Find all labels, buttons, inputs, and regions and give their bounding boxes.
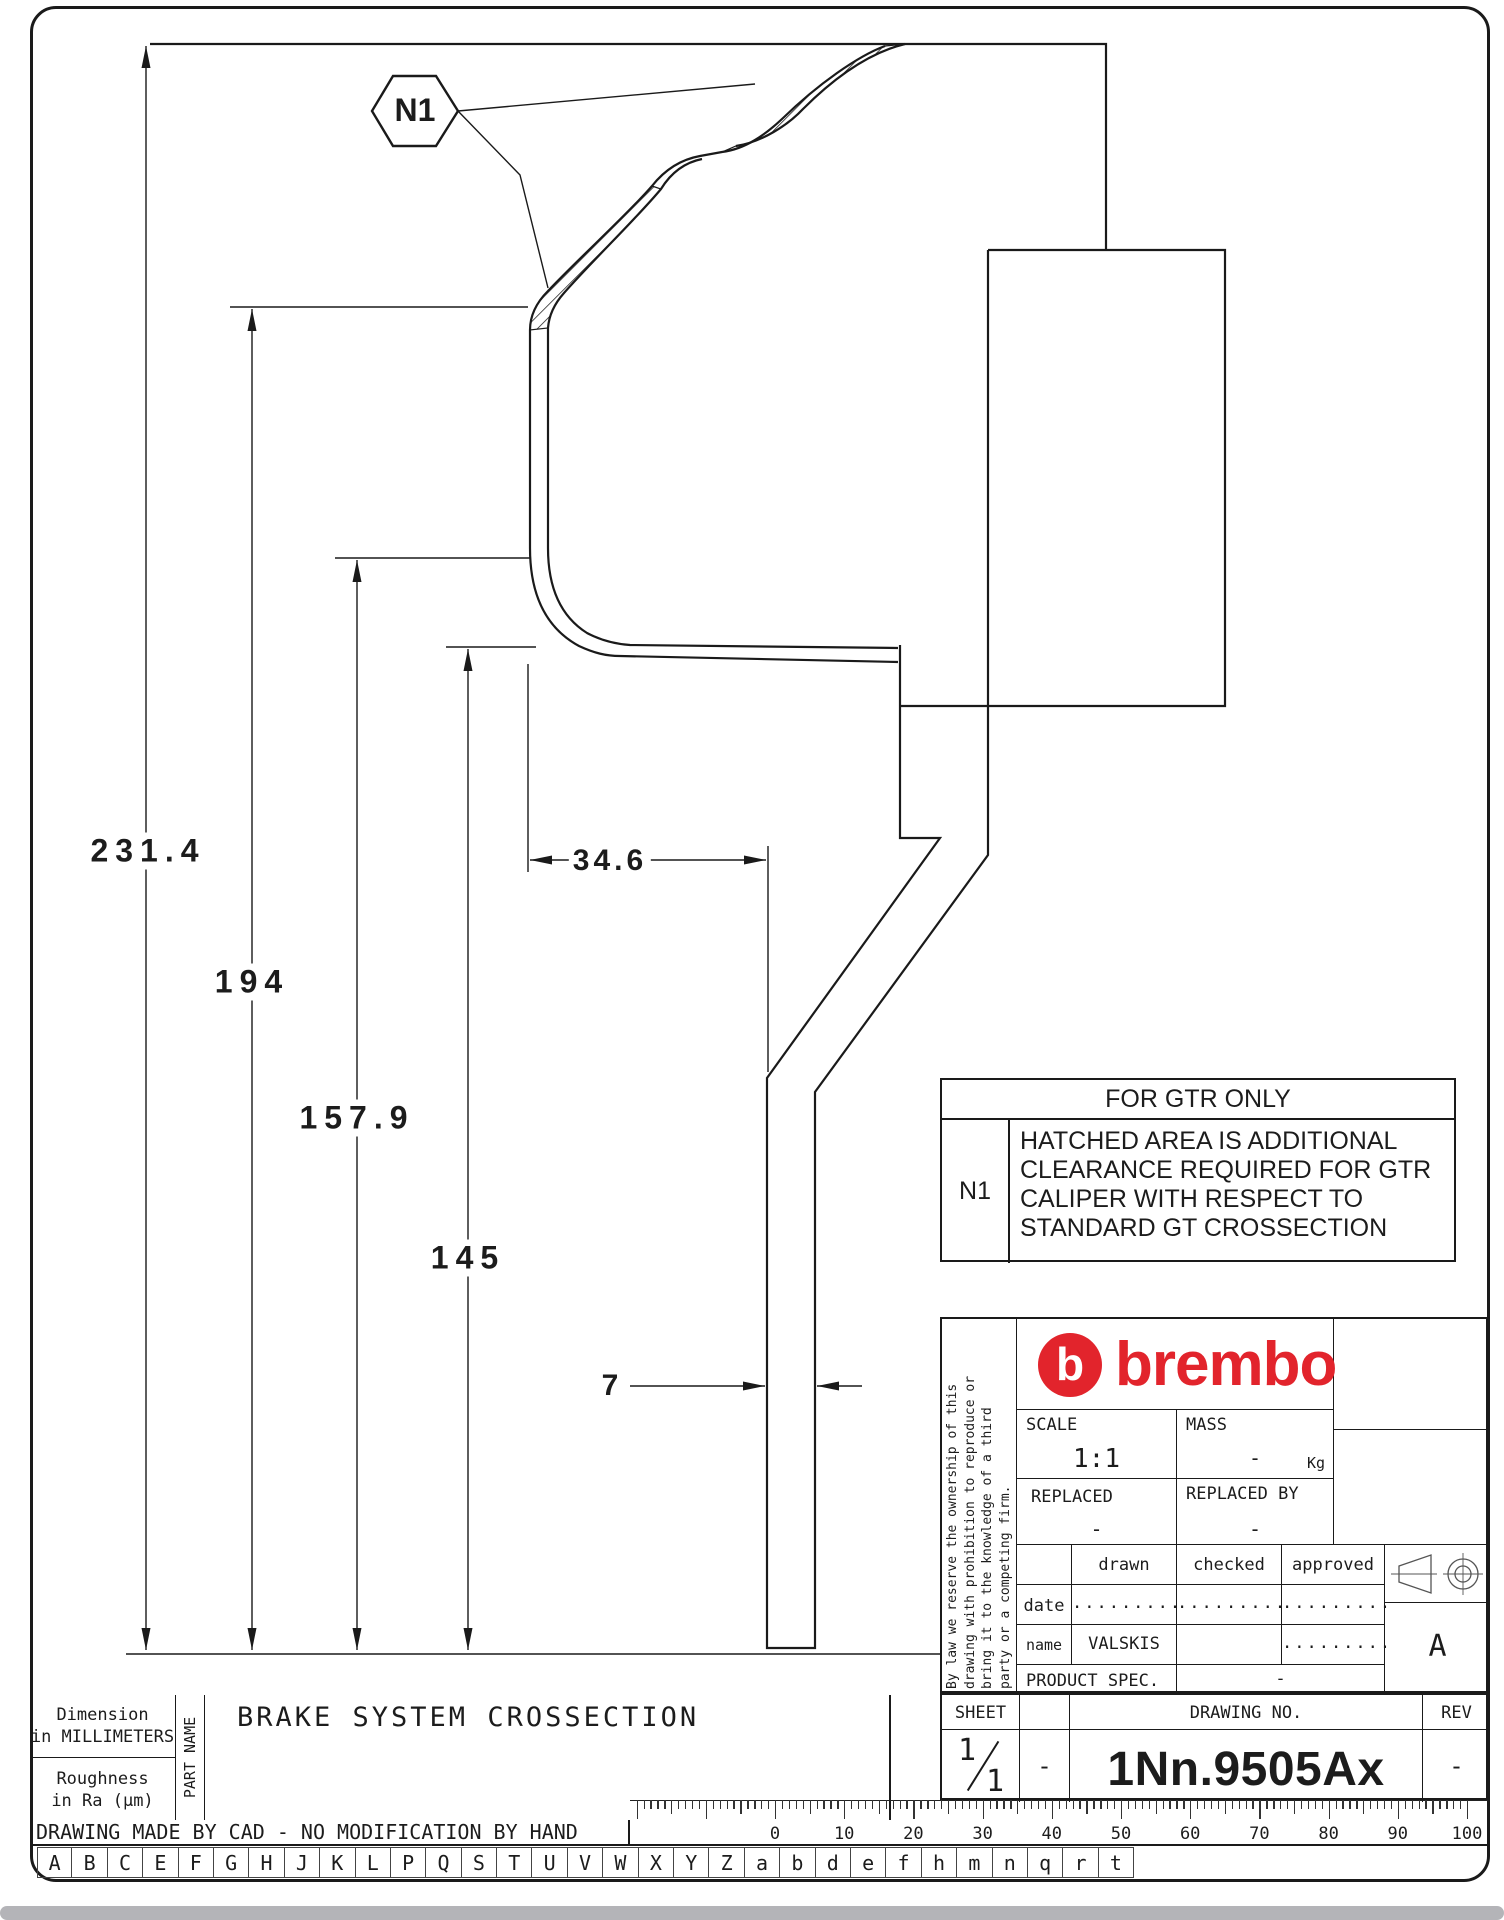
- ruler-tick: [1010, 1800, 1011, 1809]
- letter-cell: d: [816, 1847, 851, 1878]
- ruler-tick: [1412, 1800, 1413, 1809]
- ruler-tick: [1086, 1800, 1087, 1814]
- letter-cell: J: [285, 1847, 320, 1878]
- ruler-tick: [906, 1800, 907, 1809]
- name-approved-cell: .........: [1282, 1625, 1385, 1665]
- ruler-tick: [1342, 1800, 1343, 1809]
- ruler-tick: [1079, 1800, 1080, 1809]
- ruler-tick: [1322, 1800, 1323, 1809]
- letter-cell: A: [37, 1847, 72, 1878]
- letter-cell: F: [179, 1847, 214, 1878]
- ruler-tick: [1419, 1800, 1420, 1809]
- rev-value: -: [1423, 1752, 1490, 1780]
- ruler-tick: [1246, 1800, 1247, 1809]
- ruler-tick: [830, 1800, 831, 1809]
- ruler-label: 100: [1445, 1824, 1489, 1844]
- legal-line: bring it to the knowledge of a third: [979, 1319, 997, 1689]
- dimension-note-line: Dimension: [30, 1704, 175, 1726]
- ruler-tick: [1121, 1800, 1122, 1819]
- ruler-tick: [1232, 1800, 1233, 1809]
- ruler-tick: [1183, 1800, 1184, 1809]
- letter-cell: m: [957, 1847, 992, 1878]
- ruler-tick: [1169, 1800, 1170, 1809]
- checked-header: checked: [1177, 1545, 1282, 1585]
- ruler-label: 80: [1307, 1824, 1351, 1844]
- letter-cell: B: [72, 1847, 107, 1878]
- cad-drawing-page: N1 231.4 194 157.9 145 34.6 7 FOR GTR ON…: [0, 0, 1504, 1920]
- ruler-tick: [1252, 1800, 1253, 1809]
- svg-text:b: b: [1056, 1338, 1084, 1390]
- ruler-tick: [941, 1800, 942, 1809]
- letter-cell: T: [497, 1847, 532, 1878]
- ruler-tick: [664, 1800, 665, 1809]
- ruler-tick: [1329, 1800, 1330, 1819]
- ruler-tick: [775, 1800, 776, 1819]
- ruler-label: 60: [1168, 1824, 1212, 1844]
- letter-cell: P: [391, 1847, 426, 1878]
- revision-letter: A: [1385, 1629, 1490, 1664]
- callout-leader-lines: [458, 84, 755, 288]
- ruler-label: 40: [1030, 1824, 1074, 1844]
- ruler-label: 10: [822, 1824, 866, 1844]
- legal-notice: By law we reserve the ownership of this …: [942, 1319, 1017, 1695]
- ruler-label: 70: [1237, 1824, 1281, 1844]
- ruler-tick: [1425, 1800, 1426, 1809]
- product-spec-label: PRODUCT SPEC.: [1026, 1671, 1159, 1691]
- ruler-tick: [713, 1800, 714, 1809]
- ruler-tick: [1446, 1800, 1447, 1809]
- ruler-tick: [955, 1800, 956, 1809]
- sheet-label: SHEET: [942, 1703, 1019, 1723]
- part-name: BRAKE SYSTEM CROSSECTION: [237, 1707, 699, 1729]
- date-checked-value: .........: [1177, 1593, 1281, 1613]
- sheet-dash-cell: -: [1020, 1730, 1070, 1802]
- ruler-tick: [699, 1800, 700, 1809]
- ruler-tick: [1225, 1800, 1226, 1814]
- date-label: date: [1017, 1596, 1071, 1616]
- ruler-tick: [1128, 1800, 1129, 1809]
- ruler-tick: [1356, 1800, 1357, 1809]
- scale-label: SCALE: [1026, 1415, 1077, 1435]
- roughness-note-line: Roughness: [30, 1768, 175, 1790]
- ruler-tick: [1218, 1800, 1219, 1809]
- product-spec-value: -: [1177, 1669, 1384, 1689]
- ruler-tick: [1308, 1800, 1309, 1809]
- first-angle-projection-icon: [1385, 1545, 1490, 1603]
- ruler-tick: [851, 1800, 852, 1809]
- rev-header-cell: REV: [1423, 1695, 1490, 1730]
- ruler-tick: [1398, 1800, 1399, 1819]
- part-name-label-strip: PART NAME: [176, 1695, 205, 1820]
- drawn-header-label: drawn: [1072, 1555, 1176, 1575]
- ruler-tick: [823, 1800, 824, 1809]
- ruler-tick: [678, 1800, 679, 1809]
- ruler-tick: [934, 1800, 935, 1809]
- letter-cell: E: [143, 1847, 178, 1878]
- replaced-label: REPLACED: [1031, 1487, 1113, 1507]
- ruler-tick: [865, 1800, 866, 1809]
- ruler-tick: [1197, 1800, 1198, 1809]
- ruler-tick: [976, 1800, 977, 1809]
- roughness-note-line: in Ra (μm): [30, 1790, 175, 1812]
- ruler-tick: [1349, 1800, 1350, 1809]
- sheet-sub-cell: [1020, 1695, 1070, 1730]
- ruler-tick: [1315, 1800, 1316, 1809]
- name-checked-cell: [1177, 1625, 1282, 1665]
- ruler-tick: [1377, 1800, 1378, 1809]
- sheet-numerator: 1: [958, 1733, 976, 1768]
- ruler-tick: [1114, 1800, 1115, 1809]
- dim-thickness-label: 7: [598, 1369, 627, 1403]
- ruler-tick: [733, 1800, 734, 1809]
- letter-cell: f: [886, 1847, 921, 1878]
- rev-label: REV: [1423, 1703, 1490, 1723]
- brand-logo-cell: b brembo: [1017, 1319, 1334, 1410]
- ruler-tick: [754, 1800, 755, 1809]
- dim-157-label: 157.9: [295, 1100, 418, 1137]
- ruler-tick: [671, 1800, 672, 1814]
- ruler-tick: [1038, 1800, 1039, 1809]
- drawing-no-label: DRAWING NO.: [1070, 1703, 1422, 1723]
- ruler-tick: [747, 1800, 748, 1809]
- ruler-label: 50: [1099, 1824, 1143, 1844]
- ruler-tick: [1176, 1800, 1177, 1809]
- replaced-by-label: REPLACED BY: [1186, 1484, 1299, 1504]
- ruler-tick: [893, 1800, 894, 1809]
- letter-cell: H: [249, 1847, 284, 1878]
- drawn-header: drawn: [1072, 1545, 1177, 1585]
- ruler-tick: [1280, 1800, 1281, 1809]
- mass-label: MASS: [1186, 1415, 1227, 1435]
- ruler-tick: [1301, 1800, 1302, 1809]
- scale-cell: SCALE 1:1: [1017, 1410, 1177, 1479]
- legal-line: By law we reserve the ownership of this: [944, 1319, 962, 1689]
- ruler-tick: [872, 1800, 873, 1809]
- sheet-bar: SHEET DRAWING NO. REV 1 1 - 1Nn.9505Ax -: [940, 1693, 1488, 1800]
- letter-cell: b: [780, 1847, 815, 1878]
- product-spec-value-cell: -: [1177, 1665, 1385, 1695]
- letter-cell: e: [851, 1847, 886, 1878]
- ruler-tick: [920, 1800, 921, 1809]
- cad-note: DRAWING MADE BY CAD - NO MODIFICATION BY…: [36, 1820, 578, 1844]
- ruler-tick: [1439, 1800, 1440, 1809]
- ruler-tick: [1142, 1800, 1143, 1809]
- ruler-tick: [1204, 1800, 1205, 1809]
- letter-cell: q: [1028, 1847, 1063, 1878]
- mass-unit: Kg: [1307, 1454, 1325, 1472]
- product-spec-cell: PRODUCT SPEC.: [1017, 1665, 1177, 1695]
- ruler-tick: [768, 1800, 769, 1809]
- ruler-tick: [948, 1800, 949, 1814]
- ruler-tick: [1370, 1800, 1371, 1809]
- ruler-tick: [692, 1800, 693, 1809]
- name-drawn-cell: VALSKIS: [1072, 1625, 1177, 1665]
- ruler-tick: [817, 1800, 818, 1809]
- letter-cell: K: [320, 1847, 355, 1878]
- letter-cell: h: [922, 1847, 957, 1878]
- ruler-tick: [1135, 1800, 1136, 1809]
- ruler-label: 0: [753, 1824, 797, 1844]
- ruler-tick: [1384, 1800, 1385, 1809]
- letter-cell: V: [568, 1847, 603, 1878]
- sheet-denominator: 1: [986, 1764, 1004, 1799]
- date-approved-value: .........: [1282, 1593, 1384, 1613]
- ruler-tick: [810, 1800, 811, 1814]
- ruler-tick: [927, 1800, 928, 1809]
- brand-wordmark: brembo: [1115, 1334, 1336, 1396]
- drawing-number: 1Nn.9505Ax: [1070, 1742, 1422, 1797]
- roughness-note: Roughness in Ra (μm): [30, 1758, 176, 1820]
- letter-cell: Q: [426, 1847, 461, 1878]
- scale-value: 1:1: [1017, 1444, 1176, 1474]
- drawn-by-name: VALSKIS: [1072, 1634, 1176, 1654]
- ruler-tick: [990, 1800, 991, 1809]
- dim-width-label: 34.6: [569, 844, 651, 878]
- ruler-label: 30: [961, 1824, 1005, 1844]
- letter-cell: r: [1063, 1847, 1098, 1878]
- ruler-tick: [1336, 1800, 1337, 1809]
- window-bottom-bar: [0, 1906, 1504, 1920]
- letter-cell: Z: [709, 1847, 744, 1878]
- ruler-tick: [1031, 1800, 1032, 1809]
- date-checked-cell: .........: [1177, 1585, 1282, 1625]
- dim-194-label: 194: [211, 964, 293, 1001]
- revision-cell: A: [1385, 1603, 1490, 1695]
- dimension-note: Dimension in MILLIMETERS: [30, 1695, 176, 1758]
- ruler-tick: [1266, 1800, 1267, 1809]
- ruler-tick: [983, 1800, 984, 1819]
- ruler-tick: [1239, 1800, 1240, 1809]
- ruler-tick: [900, 1800, 901, 1809]
- part-name-label: PART NAME: [176, 1695, 205, 1820]
- note-ref-cell: N1: [942, 1120, 1010, 1263]
- ruler-label: 20: [891, 1824, 935, 1844]
- ruler-tick: [1003, 1800, 1004, 1809]
- letter-cell: G: [214, 1847, 249, 1878]
- letter-cell: Y: [674, 1847, 709, 1878]
- title-block-empty-cell: [1334, 1430, 1490, 1545]
- ruler-tick: [706, 1800, 707, 1819]
- letter-cell: t: [1099, 1847, 1134, 1878]
- ruler-tick: [782, 1800, 783, 1809]
- ruler-tick: [886, 1800, 887, 1809]
- ruler-tick: [740, 1800, 741, 1814]
- replaced-by-cell: REPLACED BY -: [1177, 1479, 1334, 1545]
- replaced-by-value: -: [1177, 1517, 1333, 1541]
- ruler-tick: [1432, 1800, 1433, 1814]
- ruler-tick: [1017, 1800, 1018, 1814]
- ruler-tick: [644, 1800, 645, 1809]
- ruler-tick: [1363, 1800, 1364, 1814]
- legal-line: drawing with prohibition to reproduce or: [962, 1319, 980, 1689]
- ruler-tick: [1190, 1800, 1191, 1819]
- note-line: CALIPER WITH RESPECT TO: [1020, 1185, 1450, 1214]
- ruler-tick: [844, 1800, 845, 1819]
- sheet-header-cell: SHEET: [942, 1695, 1020, 1730]
- ruler-tick: [1294, 1800, 1295, 1814]
- ruler-tick: [1107, 1800, 1108, 1809]
- checked-header-label: checked: [1177, 1555, 1281, 1575]
- ruler-tick: [1391, 1800, 1392, 1809]
- date-row-label-cell: date: [1017, 1585, 1072, 1625]
- ruler-tick: [803, 1800, 804, 1809]
- ruler-tick: [1149, 1800, 1150, 1809]
- ruler-tick: [637, 1800, 638, 1819]
- ruler-tick: [761, 1800, 762, 1809]
- drawing-no-header-cell: DRAWING NO.: [1070, 1695, 1423, 1730]
- ruler-tick: [1059, 1800, 1060, 1809]
- ruler-tick: [1066, 1800, 1067, 1809]
- note-line: HATCHED AREA IS ADDITIONAL: [1020, 1127, 1450, 1156]
- ruler-tick: [1045, 1800, 1046, 1809]
- note-line: CLEARANCE REQUIRED FOR GTR: [1020, 1156, 1450, 1185]
- date-drawn-cell: .........: [1072, 1585, 1177, 1625]
- ruler-tick: [1052, 1800, 1053, 1819]
- approved-header: approved: [1282, 1545, 1385, 1585]
- cad-note-row: DRAWING MADE BY CAD - NO MODIFICATION BY…: [30, 1820, 630, 1844]
- ruler-tick: [1024, 1800, 1025, 1809]
- sign-label-cell: [1017, 1545, 1072, 1585]
- ruler-tick: [1100, 1800, 1101, 1809]
- sheet-value-cell: 1 1: [942, 1730, 1020, 1802]
- ruler-tick: [1163, 1800, 1164, 1809]
- ruler-tick: [1093, 1800, 1094, 1809]
- ruler-tick: [1156, 1800, 1157, 1814]
- letter-cell: L: [356, 1847, 391, 1878]
- ruler-tick: [796, 1800, 797, 1809]
- ruler-tick: [913, 1800, 914, 1819]
- ruler-tick: [969, 1800, 970, 1809]
- date-approved-cell: .........: [1282, 1585, 1385, 1625]
- sheet-dash-value: -: [1020, 1752, 1069, 1780]
- gtr-note-table: FOR GTR ONLY N1 HATCHED AREA IS ADDITION…: [940, 1078, 1456, 1262]
- ruler-tick: [996, 1800, 997, 1809]
- drawing-no-value-cell: 1Nn.9505Ax: [1070, 1730, 1423, 1802]
- note-table-header: FOR GTR ONLY: [942, 1080, 1454, 1120]
- note-text: HATCHED AREA IS ADDITIONAL CLEARANCE REQ…: [1010, 1120, 1454, 1263]
- callout-label: N1: [395, 92, 436, 129]
- title-block-empty-cell: [1334, 1319, 1490, 1430]
- letter-strip-topline: [30, 1844, 1490, 1846]
- letter-cell: W: [603, 1847, 638, 1878]
- letter-cell: a: [745, 1847, 780, 1878]
- ruler-label: 90: [1376, 1824, 1420, 1844]
- ruler-tick: [1460, 1800, 1461, 1809]
- letter-cell: X: [639, 1847, 674, 1878]
- ruler-tick: [1287, 1800, 1288, 1809]
- name-row-label-cell: name: [1017, 1625, 1072, 1665]
- ruler-tick: [837, 1800, 838, 1809]
- mass-cell: MASS - Kg: [1177, 1410, 1334, 1479]
- letter-strip: ABCEFGHJKLPQSTUVWXYZabdefhmnqrt: [37, 1847, 1134, 1878]
- dimension-note-line: in MILLIMETERS: [30, 1726, 175, 1748]
- ruler-tick: [1273, 1800, 1274, 1809]
- name-approved-value: .........: [1282, 1633, 1384, 1653]
- letter-cell: U: [532, 1847, 567, 1878]
- brembo-logo-icon: b: [1035, 1330, 1105, 1400]
- ruler-tick: [1467, 1800, 1468, 1819]
- ruler-tick: [858, 1800, 859, 1809]
- letter-cell: n: [993, 1847, 1028, 1878]
- ruler-tick: [1259, 1800, 1260, 1819]
- ruler-tick: [962, 1800, 963, 1809]
- replaced-value: -: [1017, 1517, 1176, 1541]
- rev-value-cell: -: [1423, 1730, 1490, 1802]
- ruler-tick: [1073, 1800, 1074, 1809]
- projection-symbol-cell: [1385, 1545, 1490, 1603]
- ruler-tick: [1453, 1800, 1454, 1809]
- ruler-tick: [657, 1800, 658, 1809]
- dimension-arrowheads: [142, 46, 840, 1650]
- ruler-tick: [727, 1800, 728, 1809]
- ruler-tick: [879, 1800, 880, 1814]
- name-label: name: [1017, 1636, 1071, 1654]
- note-line: STANDARD GT CROSSECTION: [1020, 1214, 1450, 1243]
- ruler-tick: [685, 1800, 686, 1809]
- letter-cell: S: [462, 1847, 497, 1878]
- legal-line: party or a competing firm.: [997, 1319, 1015, 1689]
- ruler-tick: [789, 1800, 790, 1809]
- title-block: By law we reserve the ownership of this …: [940, 1317, 1488, 1693]
- date-drawn-value: .........: [1072, 1593, 1176, 1613]
- approved-header-label: approved: [1282, 1555, 1384, 1575]
- dim-145-label: 145: [427, 1240, 509, 1277]
- replaced-cell: REPLACED -: [1017, 1479, 1177, 1545]
- ruler-tick: [1405, 1800, 1406, 1809]
- ruler-tick: [720, 1800, 721, 1809]
- ruler-tick: [1211, 1800, 1212, 1809]
- ruler-tick: [650, 1800, 651, 1809]
- dim-overall-label: 231.4: [86, 833, 209, 870]
- letter-cell: C: [108, 1847, 143, 1878]
